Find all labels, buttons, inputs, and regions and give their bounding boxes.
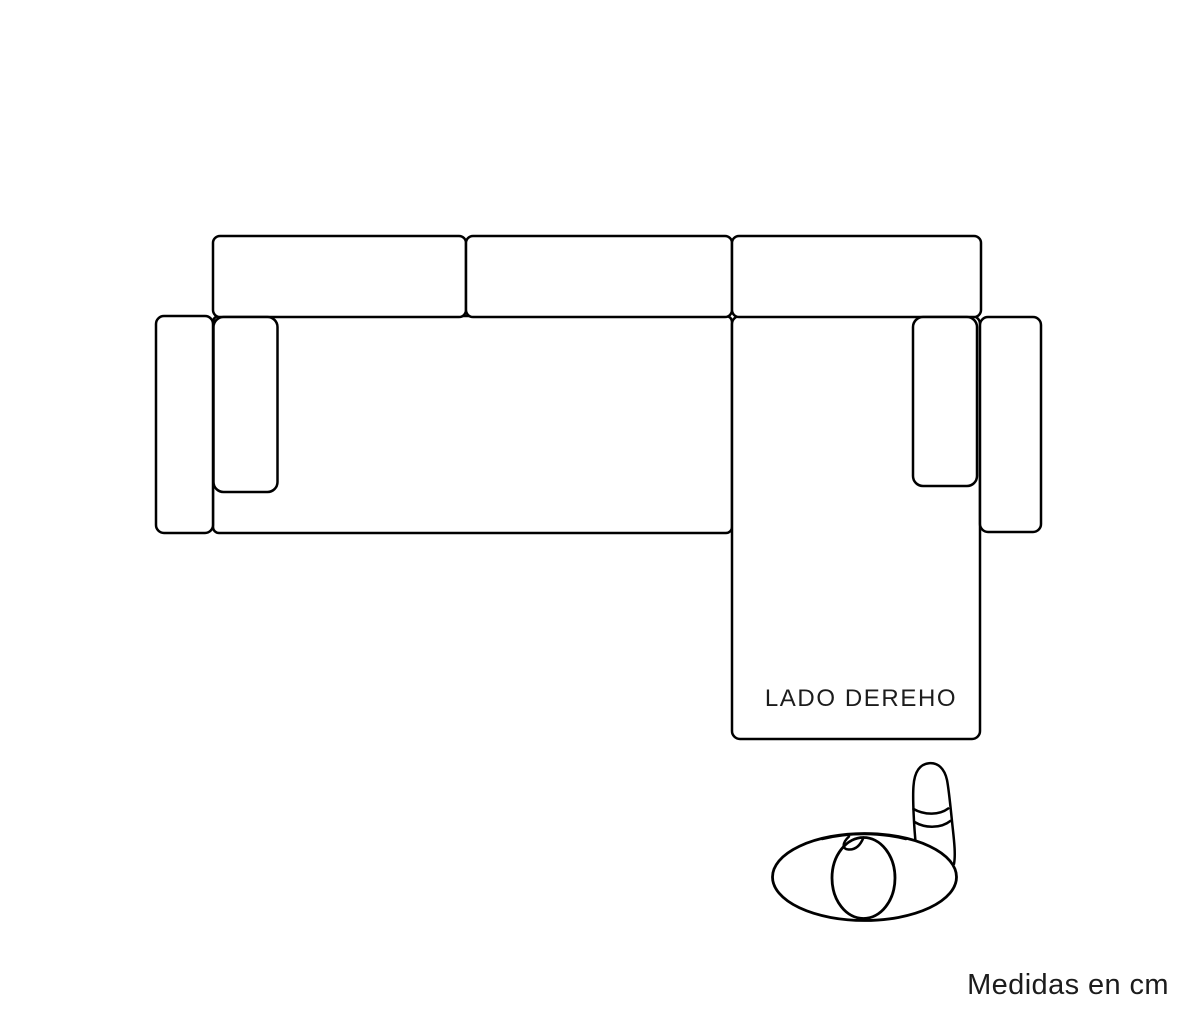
- back-cushion-middle: [466, 236, 732, 317]
- person-top-view-icon: [773, 763, 957, 920]
- person-arm-band-upper: [914, 809, 949, 814]
- units-label: Medidas en cm: [967, 969, 1169, 1001]
- side-label: LADO DEREHO: [765, 685, 957, 712]
- sofa-top-view-drawing: LADO DEREHO Medidas en cm: [0, 0, 1200, 1028]
- armrest-left: [156, 316, 213, 533]
- person-arm-band-lower: [915, 821, 951, 827]
- armrest-right: [980, 317, 1041, 532]
- seat-cushion-right: [913, 317, 977, 486]
- seat-cushion-left: [214, 317, 278, 492]
- person-head: [832, 838, 895, 919]
- sofa-measurement-diagram: LADO DEREHO Medidas en cm: [0, 0, 1200, 1028]
- main-seat: [213, 316, 732, 533]
- back-cushion-right: [732, 236, 981, 317]
- back-cushion-left: [213, 236, 466, 317]
